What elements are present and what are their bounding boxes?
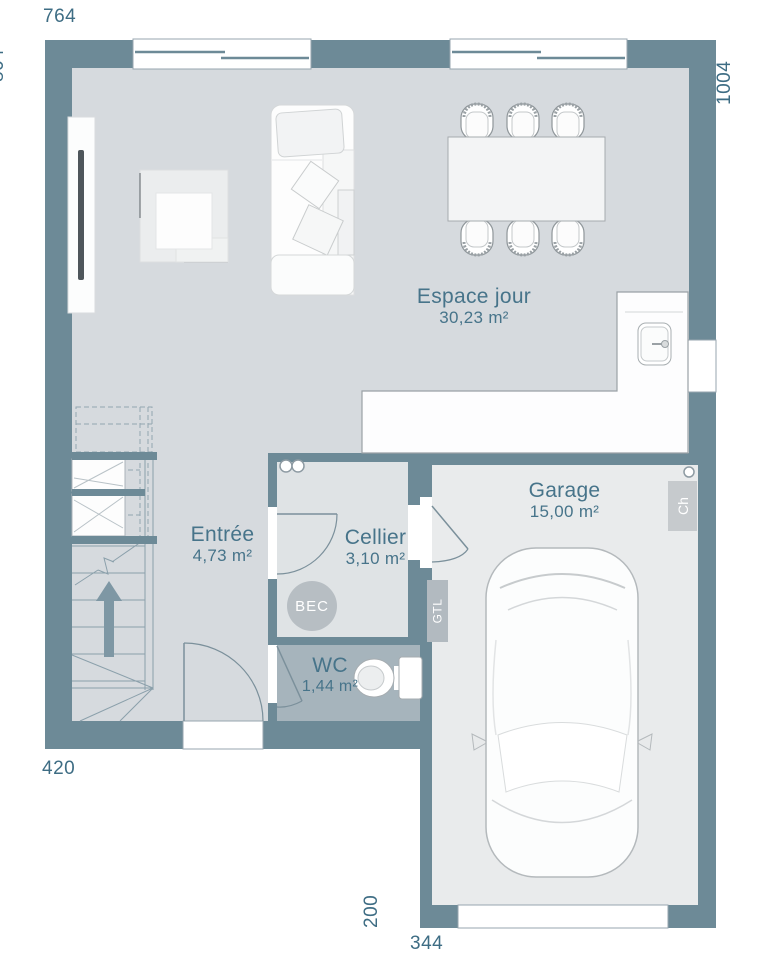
window-top-right bbox=[450, 39, 627, 69]
garage-corner-icon bbox=[684, 467, 694, 477]
dining-chair bbox=[461, 104, 493, 140]
dining-chair bbox=[507, 219, 539, 255]
dimension-bottom-left: 420 bbox=[42, 759, 75, 779]
window-top-left bbox=[133, 39, 311, 69]
dining-set bbox=[448, 104, 605, 255]
ch-badge: Ch bbox=[668, 481, 697, 531]
dining-chair bbox=[552, 104, 584, 140]
dining-chair bbox=[461, 219, 493, 255]
dining-chair bbox=[507, 104, 539, 140]
gtl-badge-label: GTL bbox=[431, 599, 445, 624]
gtl-badge: GTL bbox=[427, 580, 448, 642]
dimension-garage-bottom: 344 bbox=[410, 934, 443, 954]
dimension-top: 764 bbox=[43, 7, 76, 27]
tv-unit bbox=[68, 117, 95, 313]
floor-plan: 764 804 1004 420 200 344 Espace jour 30,… bbox=[0, 0, 777, 960]
dimension-left: 804 bbox=[0, 49, 8, 82]
floor-plan-drawing bbox=[0, 0, 777, 960]
ch-badge-label: Ch bbox=[675, 497, 691, 515]
dining-chair bbox=[552, 219, 584, 255]
bec-badge-label: BEC bbox=[295, 598, 329, 615]
dining-chairs-bottom bbox=[461, 219, 584, 255]
sofa bbox=[271, 105, 354, 295]
coffee-table bbox=[140, 170, 228, 262]
car bbox=[472, 548, 652, 877]
dining-table bbox=[448, 137, 605, 221]
kitchen-sink bbox=[638, 323, 671, 365]
bec-badge: BEC bbox=[287, 581, 337, 631]
dining-chairs-top bbox=[461, 104, 584, 140]
dimension-right: 1004 bbox=[715, 61, 735, 105]
garage-door bbox=[458, 905, 668, 928]
dimension-garage-left: 200 bbox=[362, 895, 382, 928]
tv-screen bbox=[78, 150, 84, 280]
